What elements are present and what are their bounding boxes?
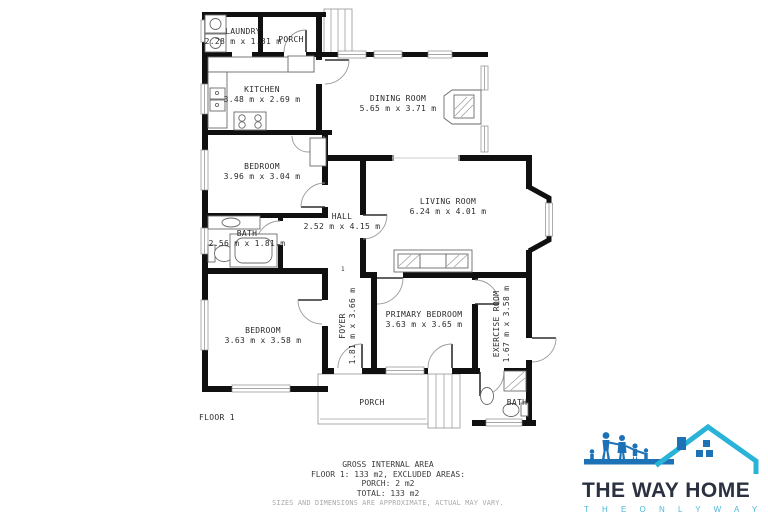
logo-graphic (582, 420, 760, 474)
area-summary: GROSS INTERNAL AREA FLOOR 1: 133 m2, EXC… (268, 460, 508, 509)
room-label-porch-top: PORCH (278, 35, 304, 45)
logo-tagline: T H E O N L Y W A Y (582, 505, 764, 512)
room-label-exercise-room: EXERCISE ROOM 1.67 m x 3.58 m (492, 286, 512, 363)
room-label-bath-mid: BATH 2.56 m x 1.81 m (209, 229, 286, 249)
room-label-bath-low: BATH (507, 398, 527, 408)
floor1-area-line: FLOOR 1: 133 m2, EXCLUDED AREAS: (268, 470, 508, 480)
room-label-laundry: LAUNDRY 2.28 m x 1.31 m (205, 27, 282, 47)
gross-internal-area-title: GROSS INTERNAL AREA (268, 460, 508, 470)
house-roof-icon (658, 427, 756, 472)
disclaimer-text: SIZES AND DIMENSIONS ARE APPROXIMATE, AC… (268, 499, 508, 509)
room-label-foyer: FOYER 1.81 m x 3.66 m (338, 288, 358, 365)
room-label-primary-bedroom: PRIMARY BEDROOM 3.63 m x 3.65 m (386, 310, 463, 330)
room-label-porch-bottom: PORCH (359, 398, 385, 408)
logo-title: THE WAY HOME (582, 479, 764, 503)
step-marker: 1 (341, 266, 345, 273)
room-label-bedroom-mid: BEDROOM 3.96 m x 3.04 m (224, 162, 301, 182)
room-label-dining-room: DINING ROOM 5.65 m x 3.71 m (360, 94, 437, 114)
room-label-hall: HALL 2.52 m x 4.15 m (304, 212, 381, 232)
total-area-line: TOTAL: 133 m2 (268, 489, 508, 499)
company-logo: THE WAY HOME T H E O N L Y W A Y (582, 420, 764, 512)
cased-opening (392, 155, 460, 161)
room-label-kitchen: KITCHEN 3.48 m x 2.69 m (224, 85, 301, 105)
room-label-bedroom-low: BEDROOM 3.63 m x 3.58 m (225, 326, 302, 346)
floor-label: FLOOR 1 (199, 413, 235, 422)
porch-area-line: PORCH: 2 m2 (268, 479, 508, 489)
floorplan-page: LAUNDRY 2.28 m x 1.31 m PORCH KITCHEN 3.… (0, 0, 768, 512)
room-label-living-room: LIVING ROOM 6.24 m x 4.01 m (410, 197, 487, 217)
